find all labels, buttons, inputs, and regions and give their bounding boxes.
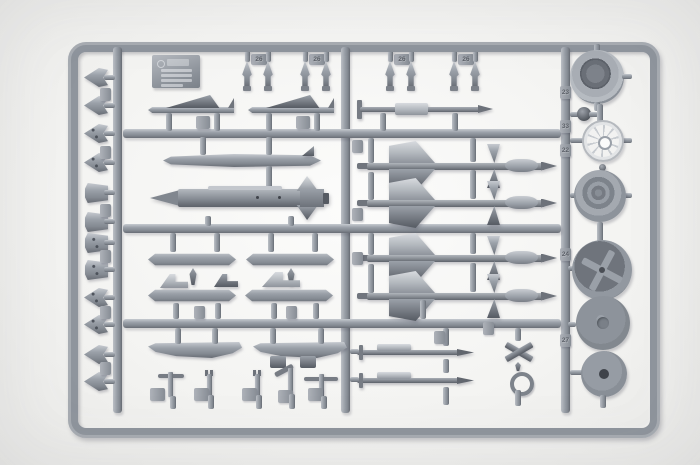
sprue-stem xyxy=(452,113,458,131)
part-number-tab xyxy=(352,140,363,153)
rocket-part xyxy=(355,98,495,122)
sprue-stem xyxy=(268,233,274,252)
sprue-stem xyxy=(170,233,176,252)
part-number-tab xyxy=(100,306,111,319)
sprue-stem xyxy=(175,328,181,344)
bomblet-part xyxy=(239,52,255,92)
sprue-stem xyxy=(104,190,115,195)
part-number-tab xyxy=(100,362,111,375)
part-number-tab xyxy=(100,204,111,217)
sprue-stem xyxy=(215,303,221,319)
large-missile-part xyxy=(150,176,330,220)
pylon-bracket-part xyxy=(160,274,188,288)
sprue-stem xyxy=(270,328,276,344)
sprue-stem xyxy=(420,300,426,319)
part-number-tab xyxy=(100,250,111,263)
part-number-tab: 23 xyxy=(560,86,571,99)
sprue-stem xyxy=(321,396,327,409)
pylon-brace-part xyxy=(188,268,198,285)
sprue-stem xyxy=(597,222,603,242)
disc-part xyxy=(581,351,627,397)
sprue-stem xyxy=(288,216,294,226)
sprue-stem xyxy=(104,103,115,108)
sprue-stem xyxy=(600,395,606,408)
sprue-stem xyxy=(256,395,262,409)
slim-rocket-part xyxy=(357,344,477,361)
sprue-stem xyxy=(208,395,214,409)
bomblet-part xyxy=(382,52,398,92)
part-number-tab xyxy=(352,208,363,221)
sprue-stem xyxy=(104,267,115,272)
sprue-runner-vertical-left xyxy=(113,47,122,413)
tab-label: 23 xyxy=(562,89,569,96)
sprue-stem xyxy=(314,113,320,131)
sprue-stem xyxy=(166,113,172,131)
sprue-stem xyxy=(470,263,476,292)
sprue-stem xyxy=(350,349,359,354)
sprue-stem xyxy=(104,322,115,327)
rail-shoe-part xyxy=(300,356,316,368)
part-number-tab: 22 xyxy=(560,144,571,157)
part-number-tab: 33 xyxy=(560,120,571,133)
sprue-photo: 26 26 26 26 xyxy=(0,0,700,465)
sprue-stem xyxy=(470,138,476,162)
pylon-rack-part xyxy=(148,288,236,303)
sprue-stem xyxy=(380,113,386,131)
part-number-tab xyxy=(100,146,111,159)
wheel-part xyxy=(574,170,626,222)
part-number-tab xyxy=(242,388,257,401)
sprue-stem xyxy=(368,233,374,255)
part-number-tab xyxy=(434,331,445,344)
sprue-stem xyxy=(313,303,319,319)
sprue-stem xyxy=(568,322,576,327)
tab-label: 33 xyxy=(562,123,569,130)
wheel-part xyxy=(572,240,632,300)
sprue-stem xyxy=(289,394,295,409)
launch-rail-part xyxy=(148,342,242,358)
tab-label: 24 xyxy=(562,251,569,258)
part-number-tab xyxy=(483,322,494,335)
sprue-stem xyxy=(350,377,359,382)
aa-missile-part xyxy=(357,271,557,321)
sprue-stem xyxy=(368,138,374,163)
bomblet-part xyxy=(467,52,483,92)
sprue-runner-horizontal-1 xyxy=(123,129,561,138)
part-number-tab xyxy=(150,388,165,401)
tab-label: 27 xyxy=(562,337,569,344)
wheel-part xyxy=(570,50,624,104)
sprue-stem xyxy=(214,233,220,252)
sprue-stem xyxy=(266,137,272,155)
part-number-tab: 27 xyxy=(560,334,571,347)
part-number-tab: 24 xyxy=(560,248,571,261)
aa-missile-part xyxy=(357,178,557,228)
tab-label: 22 xyxy=(562,147,569,154)
spoked-hub-part xyxy=(582,120,624,162)
sprue-stem xyxy=(470,233,476,254)
bomblet-part xyxy=(403,52,419,92)
sprue-stem xyxy=(312,233,318,252)
ring-part xyxy=(510,372,534,396)
sprue-stem xyxy=(214,113,220,131)
bomblet-part xyxy=(446,52,462,92)
part-number-tab xyxy=(296,116,310,129)
pylon-rack-part xyxy=(148,252,236,267)
part-number-tab xyxy=(100,88,111,101)
pylon-bracket-part xyxy=(214,274,238,287)
slim-rocket-part xyxy=(357,372,477,389)
bomblet-part xyxy=(260,52,276,92)
pylon-bracket-part xyxy=(262,272,300,287)
part-number-tab xyxy=(196,116,210,129)
sprue-stem xyxy=(104,219,115,224)
maker-plate xyxy=(152,55,200,88)
part-number-tab xyxy=(286,306,297,319)
sprue-stem xyxy=(104,295,115,300)
sprue-stem xyxy=(368,172,374,200)
sprue-runner-vertical-right xyxy=(561,47,570,413)
part-number-tab xyxy=(194,306,205,319)
sprue-stem xyxy=(104,352,115,357)
sprue-stem xyxy=(443,359,449,373)
pylon-rack-part xyxy=(245,288,333,303)
sprue-stem xyxy=(622,74,632,79)
sprue-stem xyxy=(470,170,476,199)
sprue-stem xyxy=(318,328,324,344)
fin-unit-stub xyxy=(514,362,522,371)
sprue-stem xyxy=(104,160,115,165)
sprue-stem xyxy=(205,216,211,226)
part-number-tab xyxy=(352,252,363,265)
sprue-stem xyxy=(104,240,115,245)
sprue-stem xyxy=(266,113,272,131)
drop-tank-part xyxy=(163,154,321,167)
pylon-rack-part xyxy=(246,252,334,267)
disc-part xyxy=(576,296,630,350)
sprue-stem xyxy=(271,303,277,319)
bomblet-part xyxy=(297,52,313,92)
sprue-stem xyxy=(104,75,115,80)
sprue-stem xyxy=(200,137,206,155)
glide-bomb-part xyxy=(248,95,338,117)
sprue-stem xyxy=(368,264,374,293)
drop-tank-fin xyxy=(302,146,314,156)
part-number-tab xyxy=(194,388,209,401)
sprue-stem xyxy=(170,396,176,409)
sprue-stem xyxy=(104,131,115,136)
sprue-stem xyxy=(515,390,521,406)
sprue-stem xyxy=(104,379,115,384)
sprue-stem xyxy=(212,328,218,344)
glide-bomb-part xyxy=(148,95,238,117)
sprue-stem xyxy=(443,387,449,405)
bomblet-part xyxy=(318,52,334,92)
sprue-stem xyxy=(173,303,179,319)
